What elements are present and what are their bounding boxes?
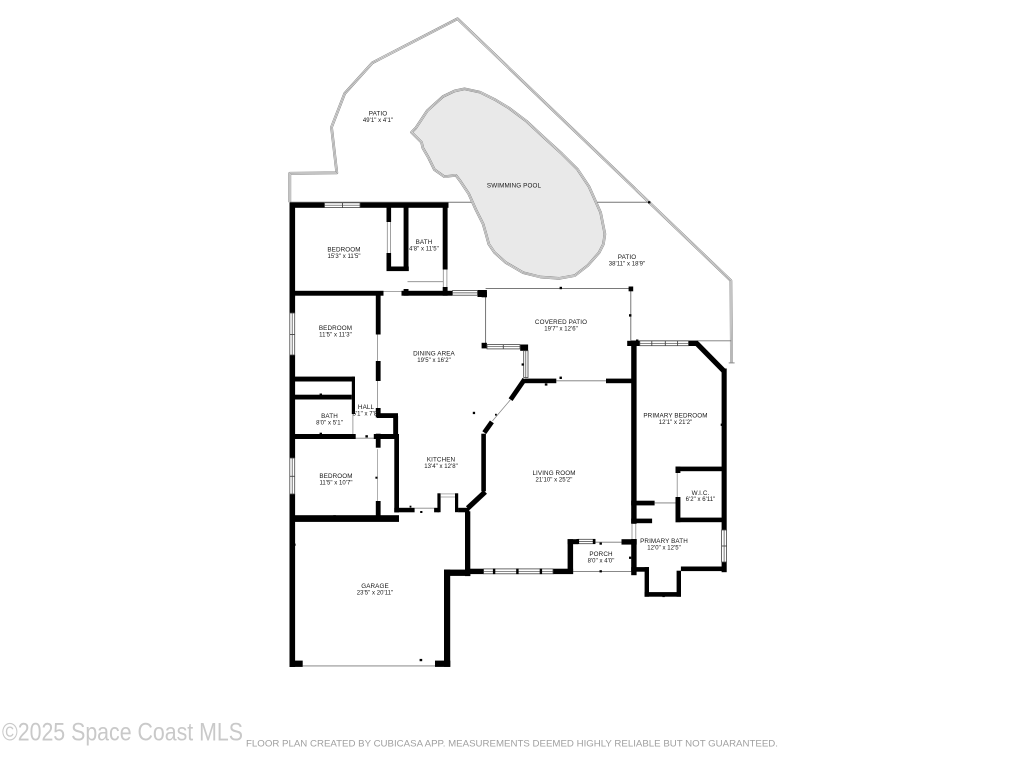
svg-text:BEDROOM: BEDROOM xyxy=(319,325,352,332)
svg-text:12'1" x 21'2": 12'1" x 21'2" xyxy=(659,420,693,426)
svg-text:19'7" x 12'6": 19'7" x 12'6" xyxy=(544,326,578,332)
svg-text:BEDROOM: BEDROOM xyxy=(327,247,360,254)
svg-text:PATIO: PATIO xyxy=(618,254,636,261)
svg-text:PRIMARY BEDROOM: PRIMARY BEDROOM xyxy=(643,413,707,420)
svg-text:BATH: BATH xyxy=(416,239,433,246)
svg-text:12'0" x 12'5": 12'0" x 12'5" xyxy=(647,545,681,551)
svg-text:5'1" x 7'8": 5'1" x 7'8" xyxy=(353,411,380,417)
svg-text:6'2" x 6'11": 6'2" x 6'11" xyxy=(686,497,716,503)
svg-text:LIVING ROOM: LIVING ROOM xyxy=(532,470,575,477)
svg-text:SWIMMING POOL: SWIMMING POOL xyxy=(487,183,542,190)
svg-text:GARAGE: GARAGE xyxy=(361,583,389,590)
svg-text:W.I.C.: W.I.C. xyxy=(692,490,710,497)
svg-text:8'0" x 4'0": 8'0" x 4'0" xyxy=(588,558,615,564)
svg-text:HALL: HALL xyxy=(358,404,375,411)
svg-text:DINING AREA: DINING AREA xyxy=(413,351,455,358)
svg-text:KITCHEN: KITCHEN xyxy=(427,457,456,464)
svg-text:PRIMARY BATH: PRIMARY BATH xyxy=(640,538,688,545)
svg-text:COVERED PATIO: COVERED PATIO xyxy=(535,319,587,326)
svg-text:BEDROOM: BEDROOM xyxy=(319,473,352,480)
svg-text:FLOOR PLAN CREATED BY CUBICASA: FLOOR PLAN CREATED BY CUBICASA APP. MEAS… xyxy=(246,739,778,749)
svg-text:38'11" x 18'9": 38'11" x 18'9" xyxy=(609,261,646,267)
svg-text:23'5" x 20'11": 23'5" x 20'11" xyxy=(357,590,394,596)
svg-text:8'0" x 5'1": 8'0" x 5'1" xyxy=(316,420,343,426)
svg-text:11'5" x 10'7": 11'5" x 10'7" xyxy=(319,480,352,486)
svg-text:19'5" x 16'2": 19'5" x 16'2" xyxy=(417,358,451,364)
svg-text:©2025 Space Coast MLS: ©2025 Space Coast MLS xyxy=(2,719,243,747)
svg-text:21'10" x 25'2": 21'10" x 25'2" xyxy=(536,477,573,483)
svg-text:PATIO: PATIO xyxy=(369,111,387,118)
svg-text:15'3" x 11'5": 15'3" x 11'5" xyxy=(327,254,360,260)
svg-text:11'5" x 11'3": 11'5" x 11'3" xyxy=(319,332,352,338)
svg-text:PORCH: PORCH xyxy=(589,551,613,558)
svg-text:BATH: BATH xyxy=(321,413,338,420)
svg-text:13'4" x 12'8": 13'4" x 12'8" xyxy=(424,464,458,470)
svg-text:4'8" x 11'5": 4'8" x 11'5" xyxy=(409,246,439,252)
svg-text:49'1" x 4'1": 49'1" x 4'1" xyxy=(363,118,393,124)
